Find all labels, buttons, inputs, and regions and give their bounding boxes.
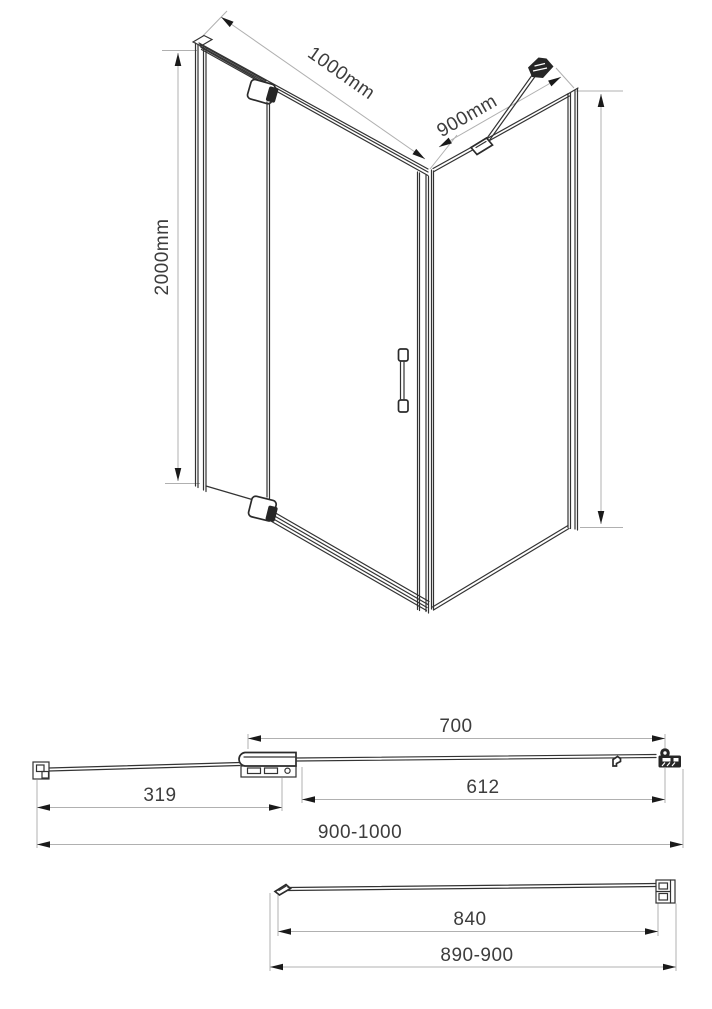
dim-height: 2000mm [152,51,200,484]
dim-wall-to-hinge: 319 [37,778,282,811]
dim-front-width: 1000mm [198,11,457,169]
handle-plan [613,757,621,767]
top-hinge [247,79,279,105]
door-handle [399,349,409,412]
glass-side [288,884,656,891]
hinge-clamp-plan [239,753,296,778]
door-hinge-edge [267,102,270,499]
dim-door-glass-width: 612 [302,767,665,803]
side-panel [432,88,579,610]
dim-side-width: 900mm [433,68,574,147]
wall-profile-side [656,880,675,903]
door-bottom-rail [206,486,429,611]
door-glass-plan [296,755,656,762]
label-side-width: 900mm [433,91,501,142]
label-door-width: 700 [439,716,472,737]
glass-clamp [471,138,493,155]
label-front-width: 1000mm [304,43,379,104]
glass-clip-side [275,885,291,896]
label-side-overall-width: 890-900 [440,945,513,966]
label-wall-to-hinge: 319 [143,785,176,806]
label-height: 2000mm [152,219,173,296]
door-plan-view: 700 612 319 900-1000 [33,716,683,848]
label-side-glass-width: 840 [453,909,486,930]
bottom-hinge [248,495,278,522]
side-plan-view: 840 890-900 [270,880,676,971]
label-door-glass-width: 612 [466,777,499,798]
wall-anchor [528,58,554,79]
technical-drawing-page: 2000mm 1000mm 900mm [0,0,712,1009]
wall-bracket-plan [659,748,682,767]
wall-profile-plan [33,762,49,779]
bar-glass-plan [49,763,240,772]
label-door-overall-width: 900-1000 [318,822,402,843]
door-front-edge [418,172,429,613]
dim-side-glass-width: 840 [278,895,658,936]
dim-height-right [576,91,623,528]
wall-profile [193,36,212,492]
shower-enclosure-drawing: 2000mm 1000mm 900mm [0,0,712,1009]
dim-door-overall-width: 900-1000 [37,769,683,848]
dim-door-width: 700 [248,716,665,749]
iso-view: 2000mm 1000mm 900mm [152,11,623,613]
